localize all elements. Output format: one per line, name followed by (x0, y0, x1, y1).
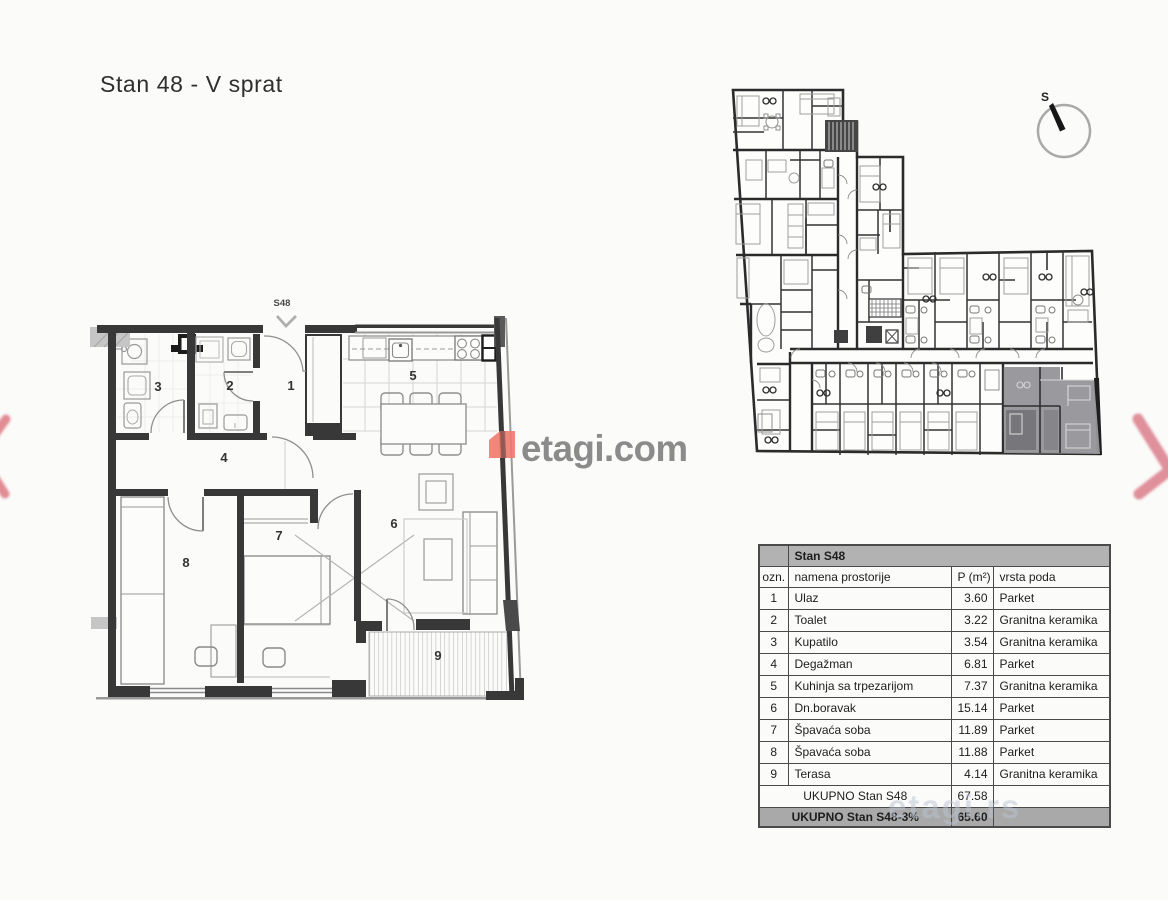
svg-text:S48: S48 (274, 298, 291, 309)
svg-text:7: 7 (275, 528, 282, 543)
svg-text:1: 1 (287, 378, 294, 393)
svg-text:9: 9 (434, 648, 441, 663)
svg-text:4: 4 (220, 450, 228, 465)
svg-text:5: 5 (409, 368, 416, 383)
svg-text:2: 2 (226, 378, 233, 393)
svg-text:8: 8 (182, 555, 189, 570)
svg-text:S: S (1041, 90, 1049, 104)
svg-text:6: 6 (390, 516, 397, 531)
svg-text:3: 3 (154, 379, 161, 394)
